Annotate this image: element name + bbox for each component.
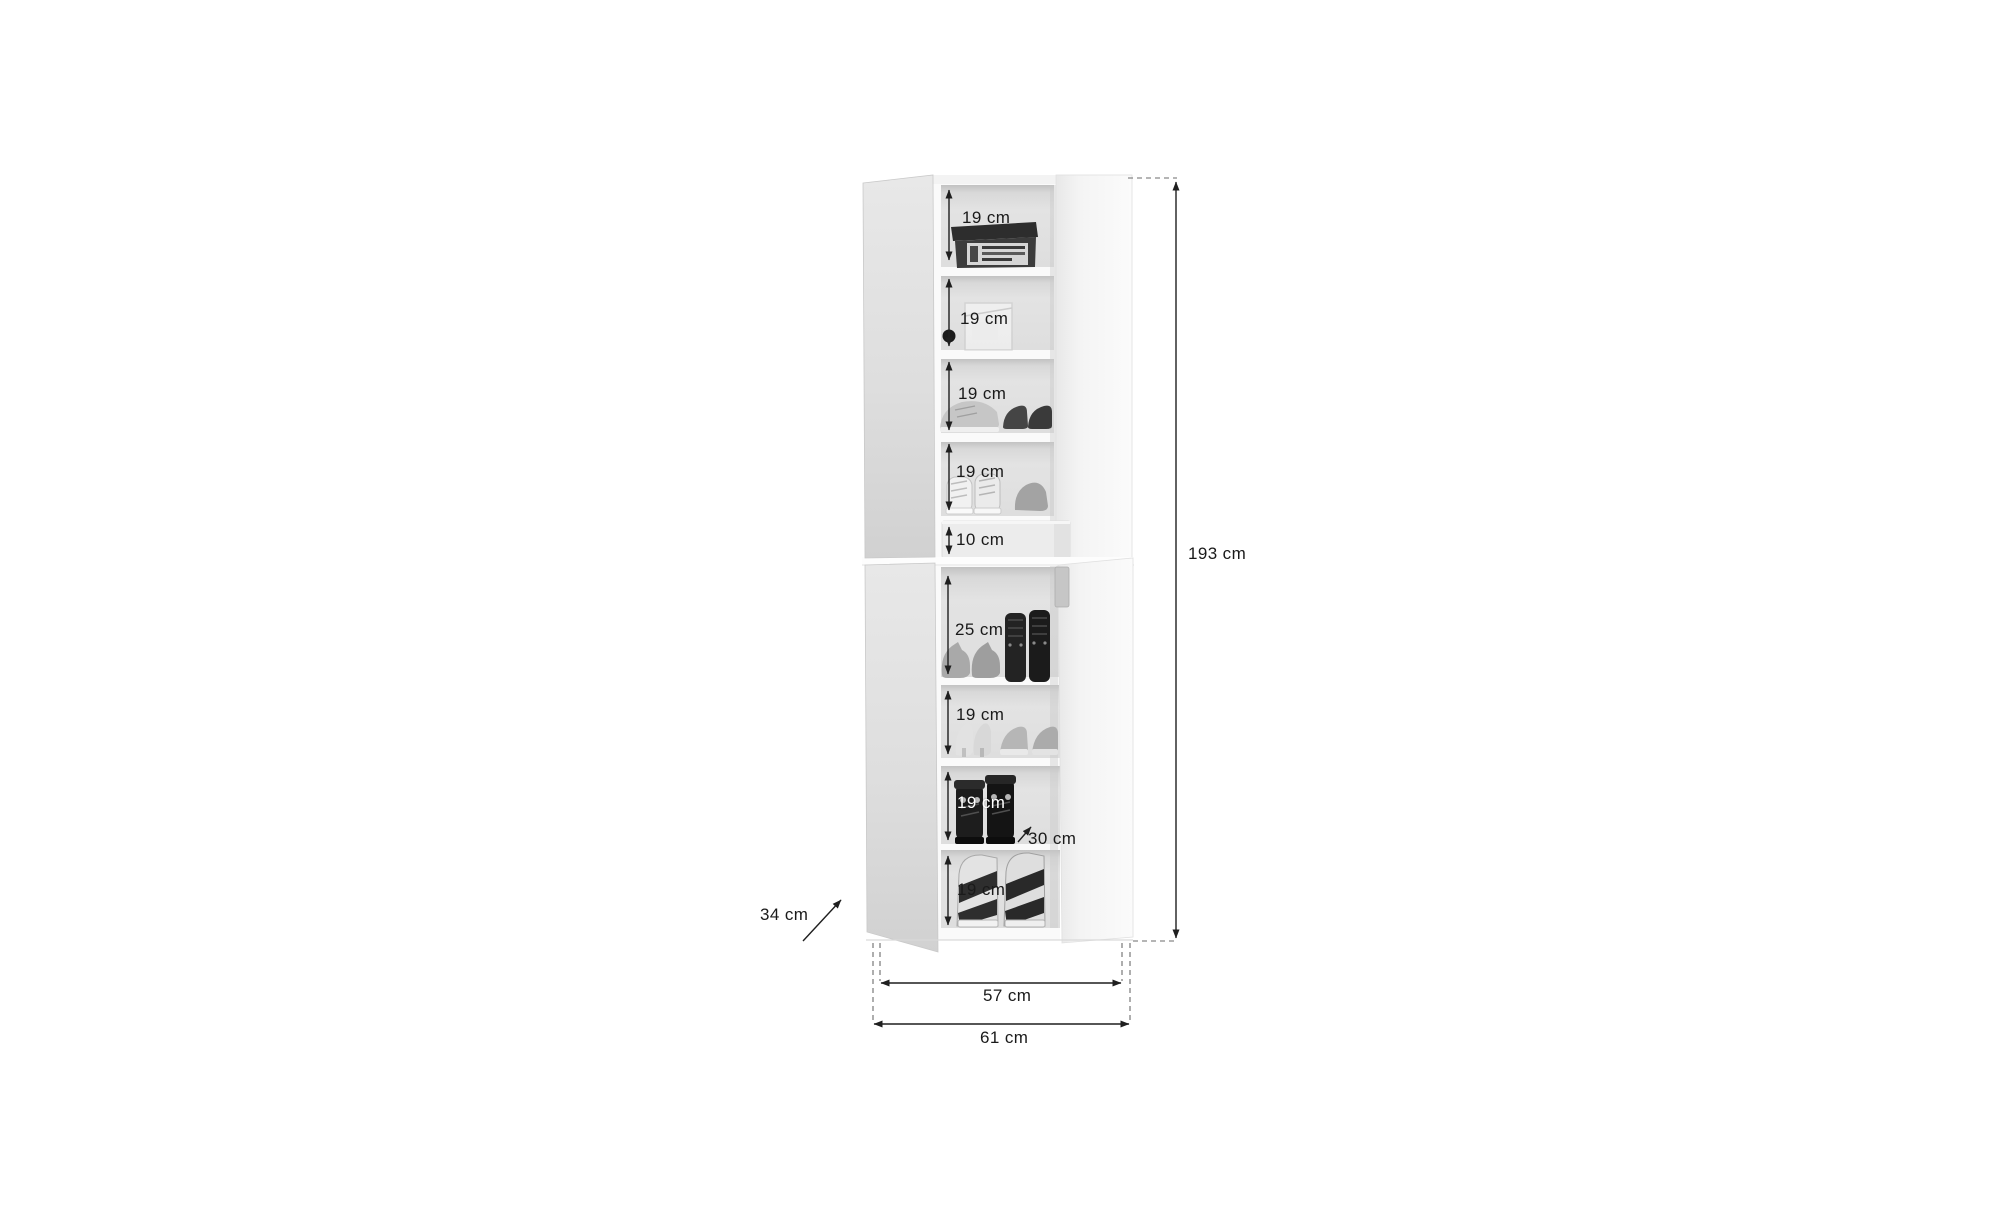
compartment-5-height-label: 25 cm (955, 620, 1003, 640)
inner-width-label: 57 cm (983, 986, 1031, 1006)
compartment-4-height-label: 19 cm (956, 462, 1004, 482)
total-width-label: 61 cm (980, 1028, 1028, 1048)
compartment-7-height-label: 19 cm (957, 793, 1005, 813)
left-door-upper (863, 175, 935, 558)
compartment-8-height-label: 19 cm (957, 880, 1005, 900)
product-dimension-diagram: 19 cm 19 cm 19 cm 19 cm 10 cm 25 cm 19 c… (0, 0, 2000, 1222)
total-height-label: 193 cm (1188, 544, 1246, 564)
shelf-depth-label: 30 cm (1028, 829, 1076, 849)
compartment-3-height-label: 19 cm (958, 384, 1006, 404)
compartment-1-height-label: 19 cm (962, 208, 1010, 228)
depth-leader (803, 900, 841, 941)
compartment-2-height-label: 19 cm (960, 309, 1008, 329)
shoe-box-image (951, 222, 1038, 268)
right-door-upper (1056, 175, 1132, 560)
left-door-lower (865, 563, 938, 952)
door-handle (1055, 567, 1069, 607)
depth-label: 34 cm (760, 905, 808, 925)
right-door-lower (1058, 558, 1133, 943)
drawer-height-label: 10 cm (956, 530, 1004, 550)
compartment-6-height-label: 19 cm (956, 705, 1004, 725)
